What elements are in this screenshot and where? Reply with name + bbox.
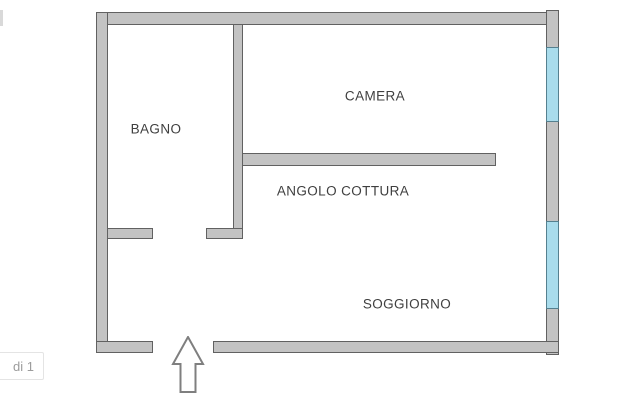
page-indicator: di 1 [0,352,44,380]
room-label-angolo-cottura: ANGOLO COTTURA [277,184,409,199]
bagno-east-wall [233,24,243,239]
left-edge-artifact [0,10,3,26]
bagno-door-jamb [206,228,243,239]
entrance-arrow-icon [170,336,206,394]
outer-wall-bottom-left [96,341,153,353]
page-indicator-label: di 1 [13,359,34,374]
room-label-bagno: BAGNO [131,122,182,137]
floorplan-viewer: BAGNOCAMERAANGOLO COTTURASOGGIORNO di 1 [0,0,640,400]
outer-wall-left [96,12,108,353]
window-2 [546,221,559,309]
cottura-divider-wall [242,153,496,166]
bagno-south-stub [107,228,153,239]
outer-wall-bottom-right [213,341,559,353]
outer-wall-top [96,12,558,25]
window-1 [546,47,559,122]
room-label-camera: CAMERA [345,89,405,104]
room-label-soggiorno: SOGGIORNO [363,297,451,312]
